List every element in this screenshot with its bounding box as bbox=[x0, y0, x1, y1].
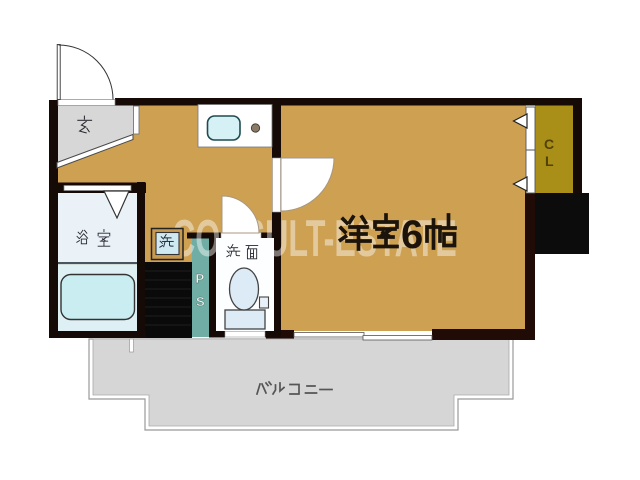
svg-text:L: L bbox=[545, 153, 554, 169]
svg-text:C: C bbox=[544, 136, 554, 152]
svg-text:P: P bbox=[196, 271, 205, 286]
svg-text:6: 6 bbox=[401, 213, 423, 257]
svg-text:S: S bbox=[196, 294, 205, 309]
